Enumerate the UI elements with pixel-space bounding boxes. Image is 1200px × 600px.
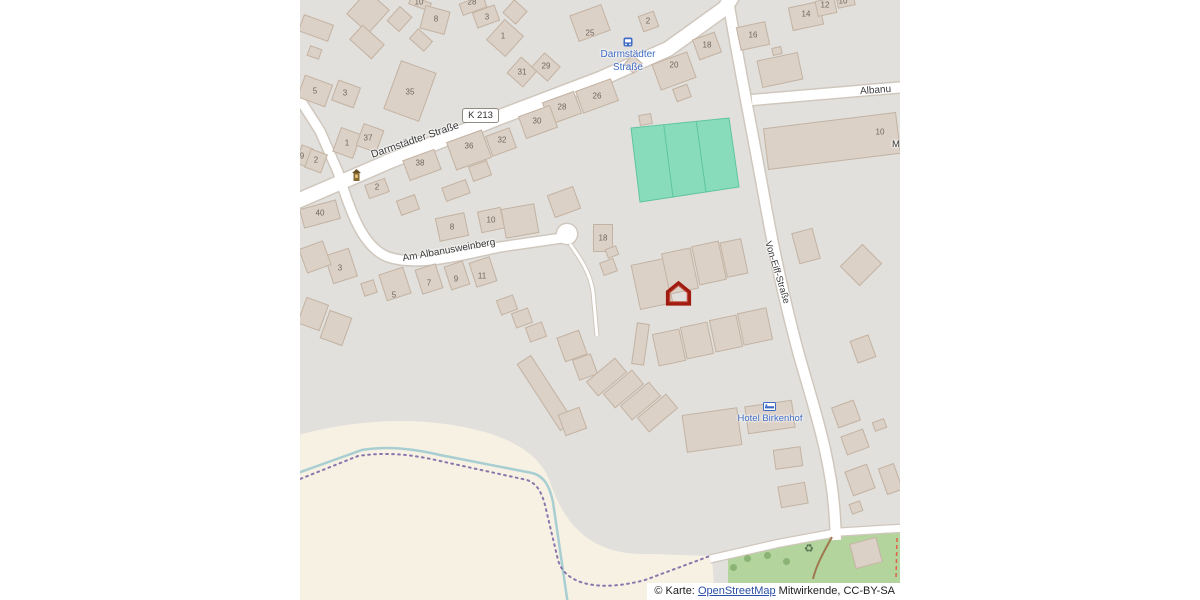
housenumber: 10 xyxy=(839,0,848,6)
bus-stop-icon xyxy=(623,37,633,47)
housenumber: 8 xyxy=(450,223,454,232)
housenumber: 9 xyxy=(300,152,304,161)
attribution-prefix: © Karte: xyxy=(654,585,698,597)
housenumber: 16 xyxy=(749,31,758,40)
housenumber: 20 xyxy=(670,61,679,70)
page: { "colors": { "bg_outside": "#ffffff", "… xyxy=(0,0,1200,600)
housenumber: 31 xyxy=(518,68,527,77)
housenumber: 40 xyxy=(316,209,325,218)
housenumber: 25 xyxy=(586,29,595,38)
housenumber: 3 xyxy=(338,264,342,273)
housenumber: 35 xyxy=(406,88,415,97)
route-ref-badge: K 213 xyxy=(462,108,499,123)
housenumber: 30 xyxy=(533,117,542,126)
hotel-label: Hotel Birkenhof xyxy=(720,413,820,424)
recycling-icon: ♻ xyxy=(804,544,814,554)
housenumber: 9 xyxy=(454,275,458,284)
housenumber: 7 xyxy=(427,279,431,288)
housenumber: 2 xyxy=(375,183,379,192)
shrine-icon xyxy=(352,169,361,181)
hotel-icon xyxy=(763,402,776,411)
housenumber: 1 xyxy=(345,139,349,148)
housenumber: 10 xyxy=(876,128,885,137)
housenumber: 28 xyxy=(558,103,567,112)
street-label-albanusstrasse-partial: Albanu xyxy=(860,84,892,97)
housenumber: 11 xyxy=(478,272,486,281)
housenumber: 5 xyxy=(313,87,317,96)
housenumber: 2 xyxy=(314,156,318,165)
housenumber: 10 xyxy=(415,0,424,7)
housenumber: 28 xyxy=(468,0,477,7)
housenumber: 5 xyxy=(392,291,396,300)
selected-house-marker[interactable] xyxy=(665,280,692,307)
housenumber: 38 xyxy=(416,159,425,168)
housenumber: 18 xyxy=(703,41,712,50)
attribution-suffix: Mitwirkende, CC-BY-SA xyxy=(776,585,895,597)
housenumber: 3 xyxy=(343,89,347,98)
bus-stop-label-line2: Straße xyxy=(595,62,661,73)
housenumber: 14 xyxy=(802,10,811,19)
housenumber: 3 xyxy=(485,13,489,22)
bus-stop-label-line1: Darmstädter xyxy=(595,49,661,60)
housenumber: 32 xyxy=(498,136,507,145)
housenumber: 29 xyxy=(542,62,551,71)
housenumber: 37 xyxy=(364,134,373,143)
openstreetmap-link[interactable]: OpenStreetMap xyxy=(698,585,776,597)
building-name-partial: M xyxy=(892,139,900,150)
housenumber: 8 xyxy=(434,15,438,24)
map-viewport[interactable]: 1082831252312953352628303236383712924020… xyxy=(300,0,900,600)
housenumber: 10 xyxy=(487,216,496,225)
housenumber: 12 xyxy=(821,1,830,10)
housenumber: 2 xyxy=(646,17,650,26)
housenumber: 26 xyxy=(593,92,602,101)
housenumber: 1 xyxy=(501,32,505,41)
housenumbers-layer: 1082831252312953352628303236383712924020… xyxy=(300,0,900,600)
housenumber: 18 xyxy=(599,234,608,243)
map-attribution: © Karte: OpenStreetMap Mitwirkende, CC-B… xyxy=(647,583,900,600)
housenumber: 36 xyxy=(465,142,474,151)
